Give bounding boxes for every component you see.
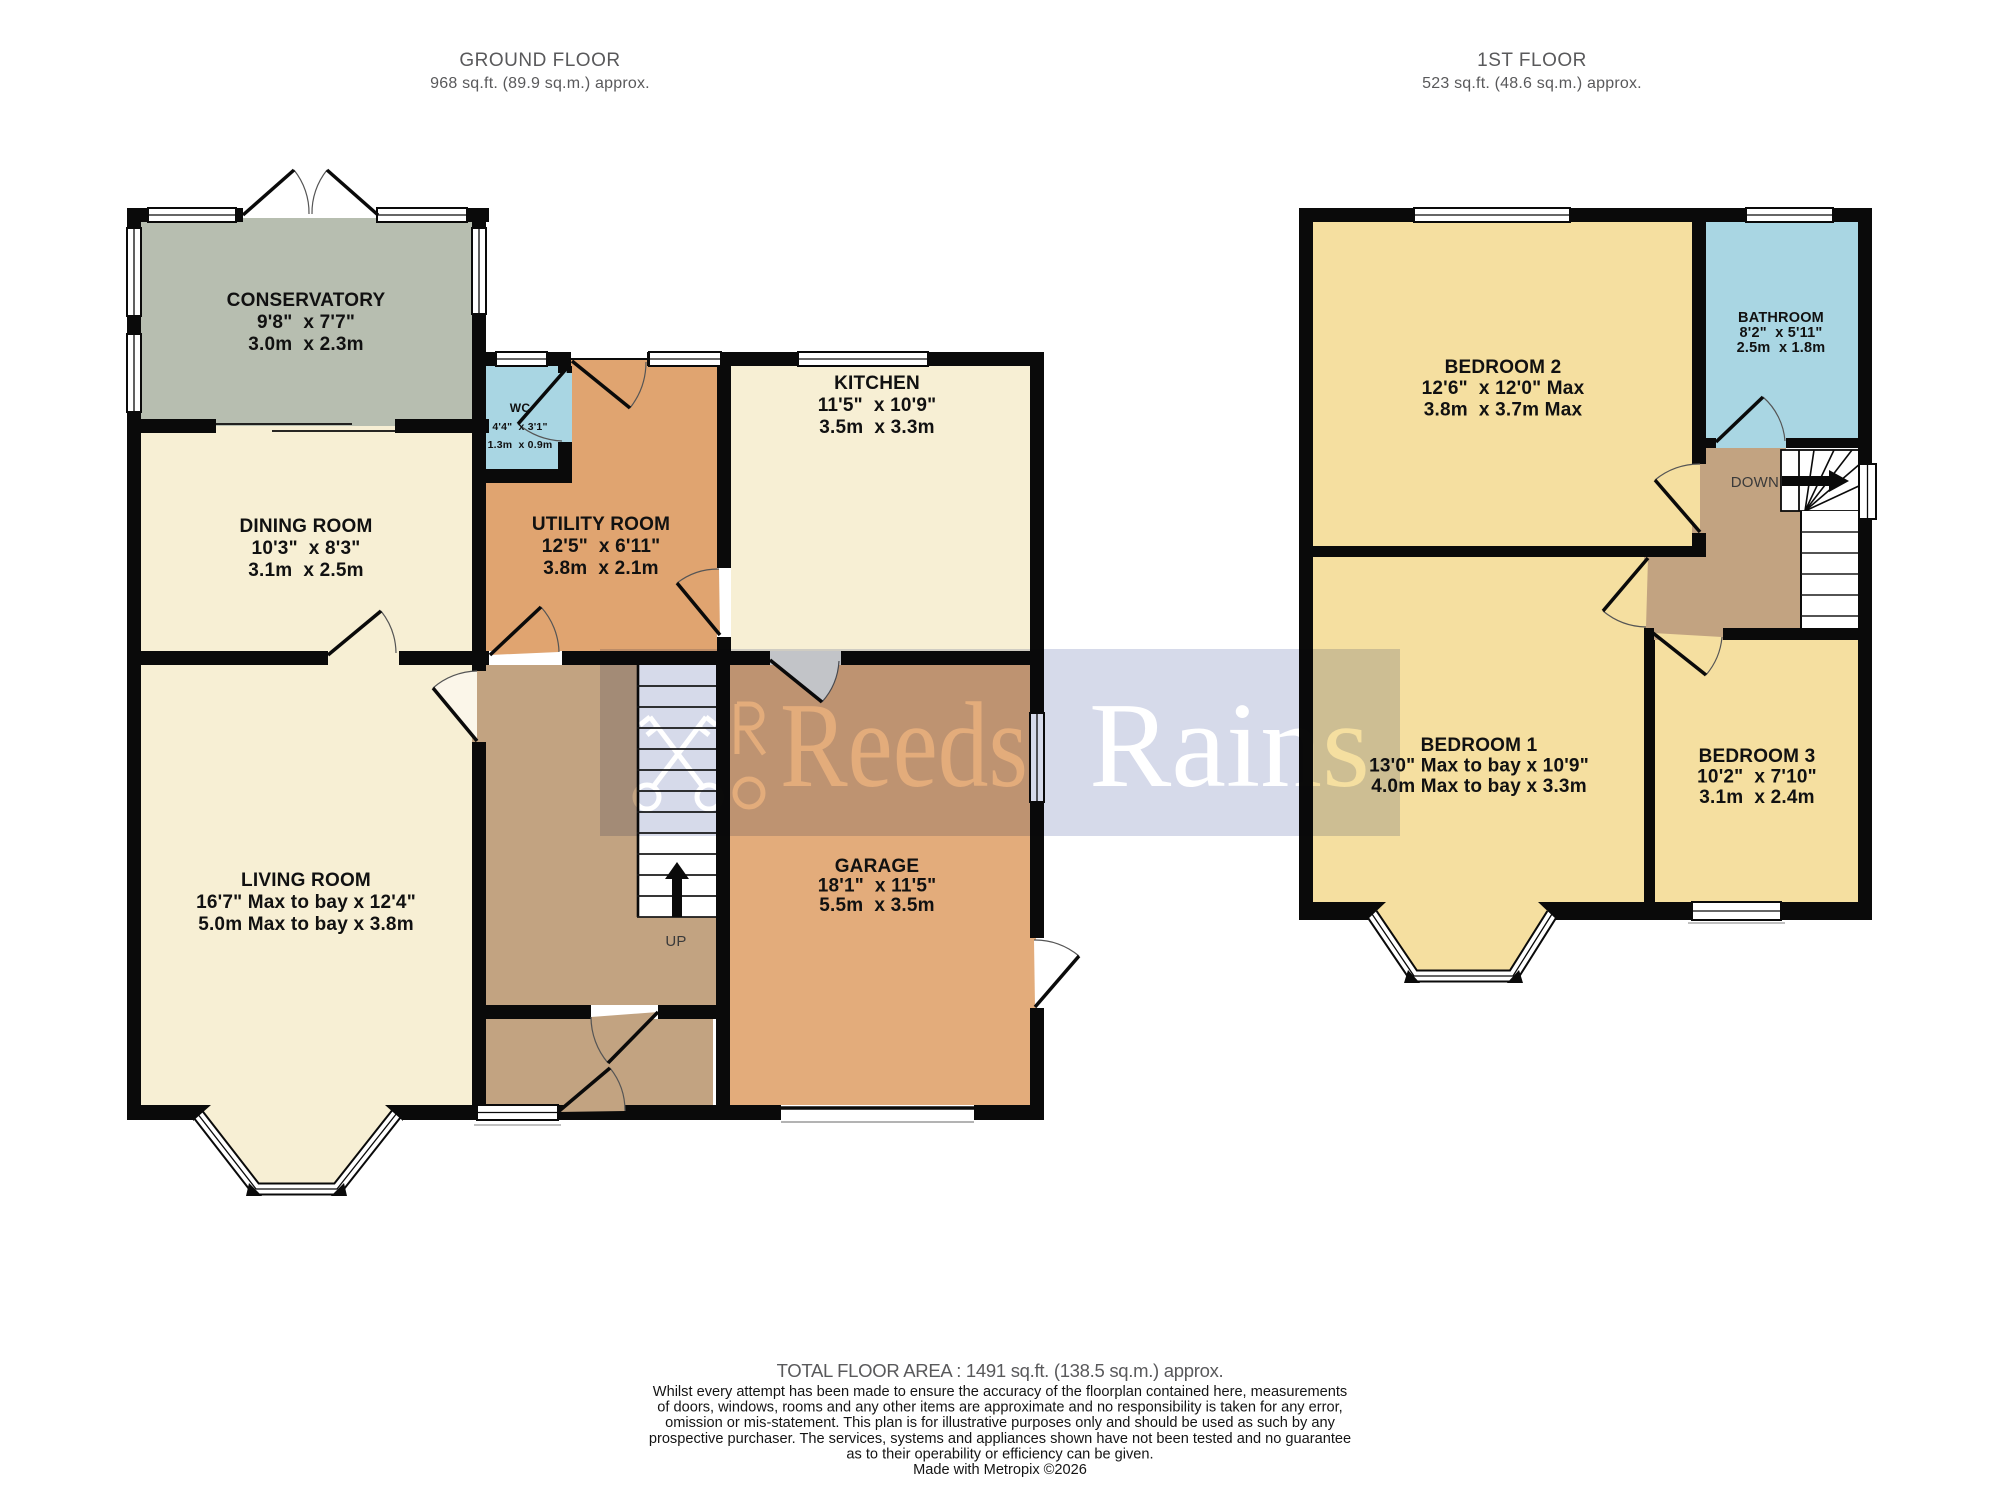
svg-text:3.5m x 3.3m: 3.5m x 3.3m (819, 417, 934, 438)
svg-text:omission or mis-statement. Thi: omission or mis-statement. This plan is … (665, 1415, 1335, 1431)
svg-text:of doors, windows, rooms and a: of doors, windows, rooms and any other i… (657, 1400, 1342, 1416)
svg-text:3.0m x 2.3m: 3.0m x 2.3m (248, 334, 363, 355)
svg-text:as to their operability or eff: as to their operability or efficiency ca… (846, 1446, 1153, 1462)
svg-text:4'4" x 3'1": 4'4" x 3'1" (492, 421, 547, 433)
svg-text:BEDROOM 3: BEDROOM 3 (1699, 746, 1816, 767)
svg-text:18'1" x 11'5": 18'1" x 11'5" (818, 876, 937, 897)
svg-text:Made with Metropix ©2026: Made with Metropix ©2026 (913, 1462, 1087, 1478)
svg-text:12'5" x 6'11": 12'5" x 6'11" (542, 536, 661, 557)
svg-text:11'5" x 10'9": 11'5" x 10'9" (818, 395, 937, 416)
svg-text:UP: UP (665, 933, 686, 950)
svg-text:13'0" Max to bay x 10'9": 13'0" Max to bay x 10'9" (1369, 756, 1589, 777)
svg-text:BEDROOM 2: BEDROOM 2 (1445, 357, 1562, 378)
svg-text:GROUND FLOOR: GROUND FLOOR (459, 50, 620, 71)
svg-text:5.0m Max to bay x 3.8m: 5.0m Max to bay x 3.8m (198, 914, 414, 935)
svg-text:12'6" x 12'0" Max: 12'6" x 12'0" Max (1422, 378, 1585, 399)
svg-text:1.3m x 0.9m: 1.3m x 0.9m (488, 439, 553, 451)
svg-text:2.5m x 1.8m: 2.5m x 1.8m (1737, 340, 1826, 356)
svg-text:Whilst every attempt has been: Whilst every attempt has been made to en… (653, 1384, 1347, 1400)
svg-text:UTILITY ROOM: UTILITY ROOM (532, 514, 670, 535)
svg-text:DOWN: DOWN (1731, 474, 1779, 491)
svg-text:3.1m x 2.5m: 3.1m x 2.5m (248, 560, 363, 581)
svg-text:3.8m x 2.1m: 3.8m x 2.1m (543, 558, 658, 579)
svg-text:BATHROOM: BATHROOM (1738, 310, 1824, 326)
svg-text:prospective purchaser. The ser: prospective purchaser. The services, sys… (649, 1431, 1351, 1447)
svg-text:TOTAL FLOOR AREA : 1491 sq.ft.: TOTAL FLOOR AREA : 1491 sq.ft. (138.5 sq… (777, 1360, 1224, 1381)
svg-text:8'2" x 5'11": 8'2" x 5'11" (1740, 325, 1823, 341)
svg-text:WC: WC (510, 401, 531, 415)
svg-text:10'3" x 8'3": 10'3" x 8'3" (252, 538, 361, 559)
svg-text:BEDROOM 1: BEDROOM 1 (1421, 735, 1538, 756)
svg-text:3.1m x 2.4m: 3.1m x 2.4m (1699, 787, 1814, 808)
svg-text:16'7" Max to bay x 12'4": 16'7" Max to bay x 12'4" (196, 892, 416, 913)
svg-text:DINING ROOM: DINING ROOM (239, 516, 372, 537)
svg-text:4.0m Max to bay x 3.3m: 4.0m Max to bay x 3.3m (1371, 776, 1587, 797)
svg-text:CONSERVATORY: CONSERVATORY (227, 290, 386, 311)
svg-text:523 sq.ft. (48.6 sq.m.) approx: 523 sq.ft. (48.6 sq.m.) approx. (1422, 75, 1642, 92)
svg-text:5.5m x 3.5m: 5.5m x 3.5m (819, 895, 934, 916)
svg-text:968 sq.ft. (89.9 sq.m.) approx: 968 sq.ft. (89.9 sq.m.) approx. (430, 75, 650, 92)
svg-text:GARAGE: GARAGE (835, 856, 920, 877)
svg-text:LIVING ROOM: LIVING ROOM (241, 870, 371, 891)
svg-text:9'8" x 7'7": 9'8" x 7'7" (257, 312, 355, 333)
svg-text:KITCHEN: KITCHEN (834, 373, 920, 394)
svg-text:3.8m x 3.7m Max: 3.8m x 3.7m Max (1424, 399, 1583, 420)
svg-text:1ST FLOOR: 1ST FLOOR (1477, 50, 1587, 71)
svg-text:10'2" x 7'10": 10'2" x 7'10" (1697, 767, 1817, 788)
